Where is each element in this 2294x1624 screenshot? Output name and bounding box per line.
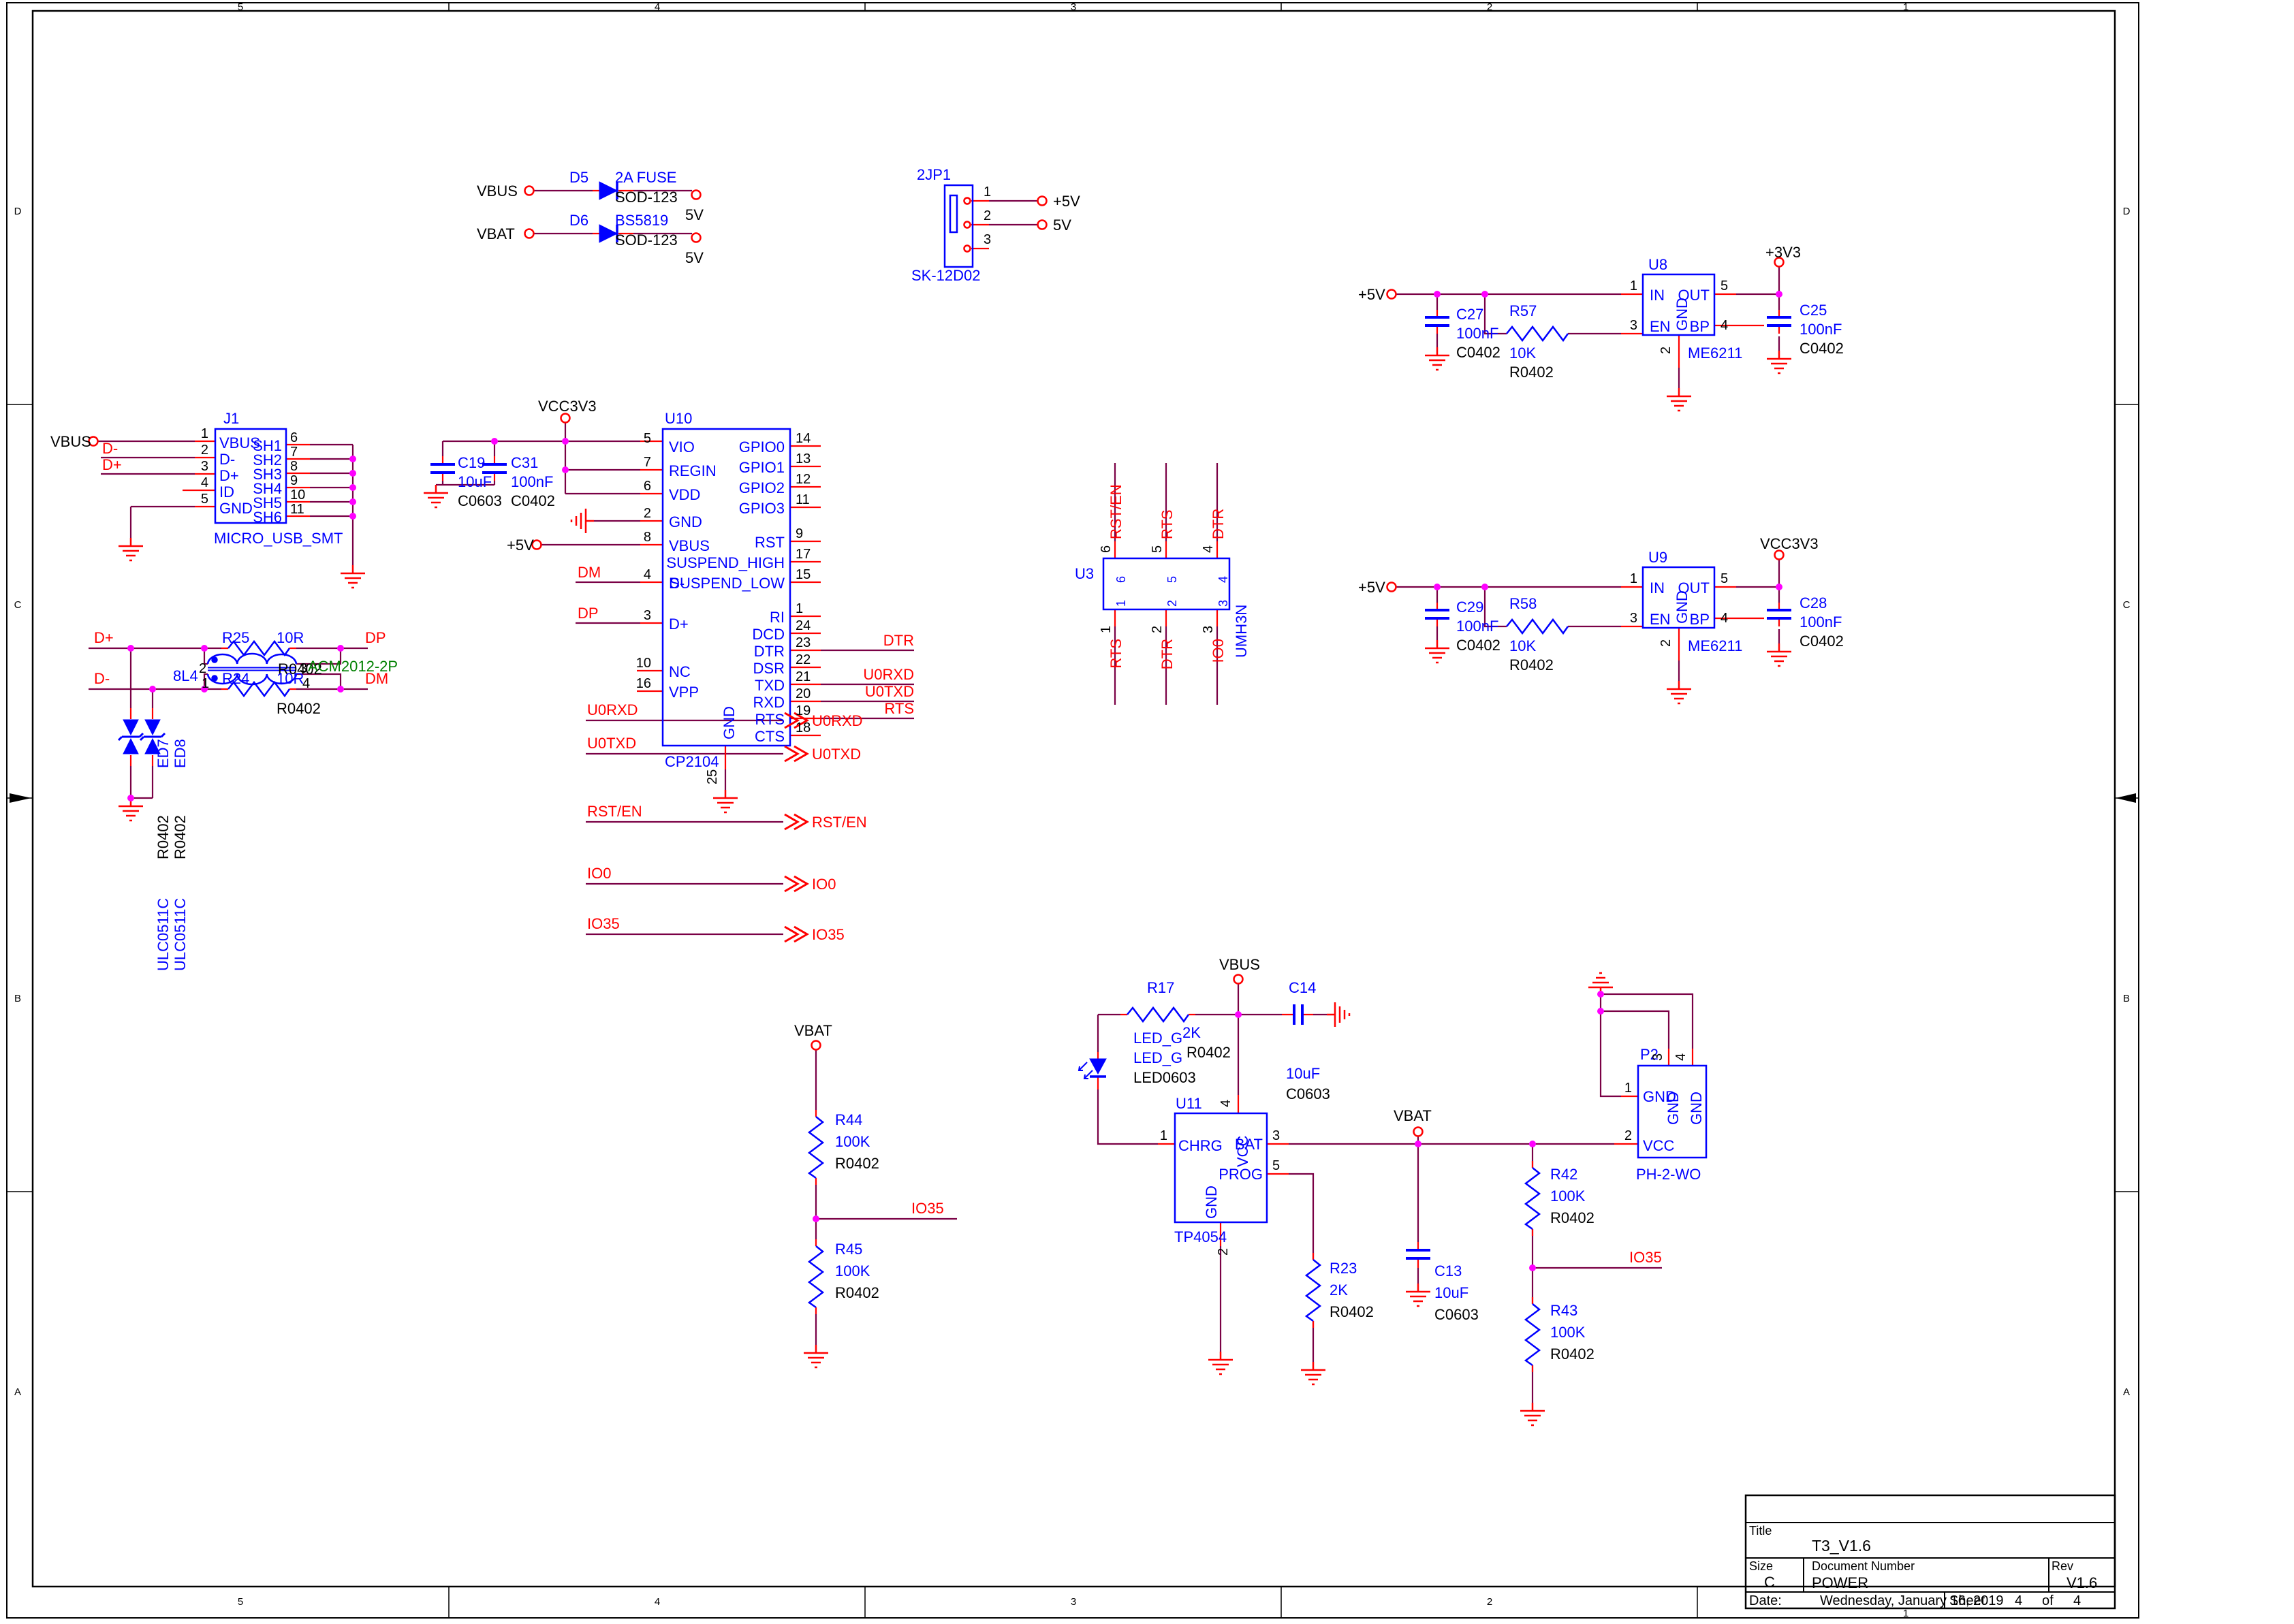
zone-bot-1: 1 <box>1903 1608 1908 1619</box>
net-io0-l: IO0 <box>587 865 611 882</box>
zone-right-c: C <box>2123 599 2131 611</box>
u8-pin4: 4 <box>1720 318 1728 333</box>
j1-pin3: 3 <box>201 459 208 474</box>
c19-package: C0603 <box>458 492 502 509</box>
u11-name-chrg: CHRG <box>1178 1137 1223 1154</box>
ed7-value: ULC0511C <box>155 898 172 971</box>
u9-pin2: 2 <box>1659 639 1674 647</box>
offpage-io35 <box>785 927 807 942</box>
zone-left-c: C <box>14 599 22 611</box>
doc-number-label: Document Number <box>1812 1559 1915 1573</box>
net-u0txd-r: U0TXD <box>812 746 861 763</box>
net-u0rxd-0: U0RXD <box>863 666 914 683</box>
u10-pin13: 13 <box>796 451 811 466</box>
j1-name-id: ID <box>219 483 234 500</box>
net-5v-1: 5V <box>685 206 704 223</box>
u3-pin2: 2 <box>1150 626 1165 633</box>
resistor-r45 <box>809 1246 823 1307</box>
zone-right-b: B <box>2123 993 2130 1004</box>
net-dp-2: DP <box>365 629 386 646</box>
r58-package: R0402 <box>1509 656 1554 673</box>
c25-package: C0402 <box>1800 340 1844 357</box>
net-dminus-1: D- <box>102 440 118 457</box>
ground-rotated-u10 <box>571 509 594 533</box>
capacitor-c29 <box>1425 610 1449 618</box>
schematic-canvas: VBUSD52A FUSESOD-1235VVBATD6BS5819SOD-12… <box>0 0 2294 1621</box>
fold-arrow-right <box>2116 793 2136 803</box>
c14-value: 10uF <box>1286 1065 1320 1082</box>
net-dplus-1: D+ <box>102 456 122 473</box>
u10-pin16: 16 <box>636 676 651 691</box>
led-ref: LED_G <box>1133 1049 1182 1066</box>
net-rts-1: RTS <box>884 700 914 717</box>
r23-ref: R23 <box>1330 1260 1357 1277</box>
net-vcc3v3-2: VCC3V3 <box>1760 535 1819 552</box>
u10-name-vdd: VDD <box>669 486 700 503</box>
u3-inner4: 4 <box>1216 576 1230 583</box>
r17-ref: R17 <box>1147 979 1174 996</box>
zone-bot-4: 4 <box>655 1596 660 1608</box>
net-plus5v-2: +5V <box>1358 286 1385 303</box>
date-label: Date: <box>1749 1593 1782 1608</box>
u11-pin4: 4 <box>1219 1100 1234 1107</box>
u10-name-dcd: DCD <box>752 626 785 643</box>
c27-value: 100nF <box>1456 325 1498 342</box>
r44-ref: R44 <box>835 1111 862 1128</box>
led-net-1: LED_G <box>1133 1030 1182 1047</box>
vbat-port-3: VBAT <box>794 1022 832 1039</box>
vbus-port-2: VBUS <box>1219 956 1260 973</box>
j1-port-vbus: VBUS <box>50 433 91 450</box>
r58-ref: R58 <box>1509 595 1537 612</box>
zone-bot-2: 2 <box>1487 1596 1492 1608</box>
u10-pin14: 14 <box>796 431 811 446</box>
u9-name-en: EN <box>1650 611 1671 628</box>
u11-pin2: 2 <box>1216 1248 1231 1256</box>
net-dtr-bot: DTR <box>1159 639 1176 669</box>
resistor-r43 <box>1526 1304 1539 1365</box>
u10-value: CP2104 <box>665 753 719 770</box>
j1-pin11: 11 <box>290 502 304 517</box>
capacitor-c31 <box>482 464 507 473</box>
u10-pin1: 1 <box>796 601 803 616</box>
u8-pin1: 1 <box>1630 278 1637 293</box>
u8-ref: U8 <box>1648 256 1667 273</box>
u10-pin5: 5 <box>644 431 651 446</box>
switch-2jp1 <box>945 185 973 267</box>
d6-value: BS5819 <box>615 212 668 229</box>
u10-name-rts: RTS <box>755 711 785 728</box>
j1-pin4: 4 <box>201 475 208 490</box>
r43-package: R0402 <box>1550 1346 1594 1363</box>
r57-package: R0402 <box>1509 364 1554 381</box>
fold-arrow-left <box>10 793 31 803</box>
u3-inner5: 5 <box>1165 576 1179 583</box>
net-5v-2: 5V <box>685 249 704 266</box>
net-vcc3v3-1: VCC3V3 <box>538 398 597 415</box>
u10-name-suspendlow: SUSPEND_LOW <box>670 575 785 592</box>
net-5v-3: 5V <box>1053 217 1071 234</box>
ground-symbols <box>119 347 1791 1425</box>
resistor-r42 <box>1526 1168 1539 1229</box>
u10-name-vbus: VBUS <box>669 537 710 554</box>
u10-name-dsr: DSR <box>753 660 785 677</box>
zone-top-1: 1 <box>1903 1 1908 13</box>
j1-pin9: 9 <box>290 473 298 488</box>
title-block: Title T3_V1.6 Size C Document Number POW… <box>1746 1495 2115 1608</box>
zone-bot-3: 3 <box>1071 1596 1076 1608</box>
u8-pin2: 2 <box>1659 347 1674 354</box>
sheet-title: T3_V1.6 <box>1812 1537 1871 1555</box>
j1-pin5: 5 <box>201 492 208 507</box>
c14-package: C0603 <box>1286 1085 1330 1102</box>
u8-name-gnd: GND <box>1674 298 1691 331</box>
u10-pin25: 25 <box>705 769 720 784</box>
u10-pin3: 3 <box>644 608 651 623</box>
net-dminus-2: D- <box>94 670 110 687</box>
u10-name-suspendhigh: SUSPEND_HIGH <box>666 554 785 571</box>
size-value: C <box>1764 1574 1775 1591</box>
u10-name-vio: VIO <box>669 439 695 456</box>
net-dtr-1: DTR <box>883 632 914 649</box>
j1-pin10: 10 <box>290 488 305 503</box>
d5-package: SOD-123 <box>615 189 678 206</box>
u3-inner2: 2 <box>1165 600 1179 607</box>
u10-pin18: 18 <box>796 720 811 735</box>
capacitor-c13 <box>1406 1250 1430 1258</box>
zone-left-a: A <box>14 1386 21 1398</box>
p2-name-gnd3: GND <box>1665 1092 1682 1125</box>
p2-pin4: 4 <box>1674 1053 1688 1061</box>
doc-number-value: POWER <box>1812 1574 1868 1591</box>
u11-name-bat: BAT <box>1235 1136 1263 1153</box>
u10-pin10: 10 <box>636 656 651 671</box>
net-3v3: +3V3 <box>1765 244 1801 261</box>
choke-ref: 8L4 <box>173 667 198 684</box>
u11-ref: U11 <box>1176 1095 1202 1112</box>
u9-pin1: 1 <box>1630 571 1637 586</box>
c28-package: C0402 <box>1800 633 1844 650</box>
rev-label: Rev <box>2052 1559 2073 1573</box>
u10-name-gnd25: GND <box>721 706 738 739</box>
j1-value: MICRO_USB_SMT <box>214 530 343 547</box>
u3-inner3: 3 <box>1216 600 1230 607</box>
u10-pin8: 8 <box>644 530 651 545</box>
u10-pin9: 9 <box>796 526 803 541</box>
u10-name-gpio2: GPIO2 <box>739 479 785 496</box>
u9-name-in: IN <box>1650 579 1665 596</box>
r45-value: 100K <box>835 1262 870 1279</box>
ed7-package: R0402 <box>155 815 172 859</box>
c13-package: C0603 <box>1434 1306 1479 1323</box>
r44-package: R0402 <box>835 1155 879 1172</box>
u8-pin3: 3 <box>1630 318 1637 333</box>
u3-inner6: 6 <box>1114 576 1128 583</box>
u10-pin15: 15 <box>796 567 811 582</box>
j1-pin8: 8 <box>290 459 298 474</box>
zone-top-2: 2 <box>1487 1 1492 13</box>
u10-ref: U10 <box>665 410 692 427</box>
j1-name-dminus: D- <box>219 451 235 468</box>
net-io35-l: IO35 <box>587 915 620 932</box>
ed7-ref: ED7 <box>155 739 172 768</box>
c31-value: 100nF <box>511 473 553 490</box>
jp1-pin3: 3 <box>984 232 991 247</box>
u8-name-en: EN <box>1650 318 1671 335</box>
net-dm-1: DM <box>578 564 601 581</box>
u10-name-gnd2: GND <box>669 513 702 530</box>
capacitor-c27 <box>1425 317 1449 325</box>
sheet-of-label: of <box>2042 1593 2054 1608</box>
net-rts-top: RTS <box>1159 509 1176 539</box>
sheet-total: 4 <box>2073 1593 2081 1608</box>
r43-ref: R43 <box>1550 1302 1577 1319</box>
r58-value: 10K <box>1509 637 1536 654</box>
u10-pin7: 7 <box>644 455 651 470</box>
zone-left-b: B <box>14 993 21 1004</box>
u10-pin11: 11 <box>796 492 810 507</box>
c27-ref: C27 <box>1456 306 1483 323</box>
j1-name-sh6: SH6 <box>253 509 282 526</box>
sheet-number: 4 <box>2015 1593 2022 1608</box>
jp1-pin2: 2 <box>984 208 991 223</box>
c29-package: C0402 <box>1456 637 1500 654</box>
zone-top-4: 4 <box>655 1 660 13</box>
c28-value: 100nF <box>1800 614 1842 631</box>
sheet-border <box>7 3 2139 1618</box>
j1-name-gnd: GND <box>219 500 253 517</box>
j1-name-dplus: D+ <box>219 467 239 484</box>
net-u0rxd-l: U0RXD <box>587 701 638 718</box>
p2-name-vcc: VCC <box>1643 1137 1675 1154</box>
j1-pin6: 6 <box>290 430 298 445</box>
zone-bot-5: 5 <box>238 1596 243 1608</box>
net-io0-r: IO0 <box>812 876 836 893</box>
net-dplus-2: D+ <box>94 629 114 646</box>
j1-ref: J1 <box>223 410 239 427</box>
u9-value: ME6211 <box>1688 637 1742 654</box>
u10-pin22: 22 <box>796 652 811 667</box>
u3-pin1: 1 <box>1099 626 1114 633</box>
j1-pin7: 7 <box>290 445 298 460</box>
resistor-r17 <box>1127 1008 1189 1021</box>
u3-pin3: 3 <box>1201 626 1216 633</box>
zone-ticks <box>7 3 2139 1618</box>
rev-value: V1.6 <box>2067 1574 2097 1591</box>
u10-name-dplus: D+ <box>669 616 689 633</box>
title-label: Title <box>1749 1524 1772 1538</box>
net-dtr-top: DTR <box>1210 509 1227 539</box>
u10-pin12: 12 <box>796 472 811 487</box>
r57-value: 10K <box>1509 345 1536 362</box>
u10-name-txd: TXD <box>755 677 785 694</box>
net-plus5v-3: +5V <box>1358 579 1385 596</box>
u10-name-rst: RST <box>755 534 785 551</box>
ground-rotated-c14 <box>1327 1002 1349 1027</box>
zone-left-d: D <box>14 206 22 217</box>
ed8-value: ULC0511C <box>172 898 189 971</box>
capacitor-c28 <box>1767 610 1791 618</box>
jp1-value: SK-12D02 <box>911 267 981 284</box>
u11-name-prog: PROG <box>1219 1166 1263 1183</box>
vbat-port-2: VBAT <box>1394 1107 1432 1124</box>
c14-ref: C14 <box>1289 979 1316 996</box>
c19-value: 10uF <box>458 473 492 490</box>
r44-value: 100K <box>835 1133 870 1150</box>
p2-value: PH-2-WO <box>1636 1166 1701 1183</box>
u8-name-in: IN <box>1650 287 1665 304</box>
resistor-r57 <box>1507 327 1568 340</box>
u10-name-ri: RI <box>770 609 785 626</box>
r42-ref: R42 <box>1550 1166 1577 1183</box>
u8-pin5: 5 <box>1720 278 1728 293</box>
u10-name-nc: NC <box>669 663 691 680</box>
p2-pin2: 2 <box>1624 1128 1632 1143</box>
r23-package: R0402 <box>1330 1303 1374 1320</box>
led-g <box>1079 1059 1106 1079</box>
c31-package: C0402 <box>511 492 555 509</box>
u10-name-dtr: DTR <box>754 643 785 660</box>
d6-package: SOD-123 <box>615 232 678 249</box>
r42-value: 100K <box>1550 1188 1586 1205</box>
u10-name-cts: CTS <box>755 728 785 745</box>
net-u0txd-l: U0TXD <box>587 735 636 752</box>
u3-pin5: 5 <box>1150 545 1165 553</box>
u9-pin3: 3 <box>1630 611 1637 626</box>
u3-ref: U3 <box>1075 565 1094 582</box>
c13-ref: C13 <box>1434 1262 1462 1279</box>
d5-ref: D5 <box>569 169 588 186</box>
capacitor-c14 <box>1294 1004 1302 1025</box>
net-io35-1: IO35 <box>911 1200 944 1217</box>
u3-pin4: 4 <box>1201 545 1216 553</box>
sheet-label: Sheet <box>1949 1593 1985 1608</box>
schematic-labels: VBUSD52A FUSESOD-1235VVBATD6BS5819SOD-12… <box>14 1 2131 1619</box>
zone-right-d: D <box>2123 206 2131 217</box>
u9-name-gnd: GND <box>1674 590 1691 624</box>
j1-pin1: 1 <box>201 426 208 441</box>
u9-pin5: 5 <box>1720 571 1728 586</box>
d6-ref: D6 <box>569 212 588 229</box>
u10-pin20: 20 <box>796 686 811 701</box>
u10-name-rxd: RXD <box>753 694 785 711</box>
led-package: LED0603 <box>1133 1069 1196 1086</box>
resistor-r58 <box>1507 620 1568 633</box>
net-rsten-top: RST/EN <box>1107 484 1125 539</box>
components <box>119 182 1791 1365</box>
c29-ref: C29 <box>1456 599 1483 616</box>
r45-ref: R45 <box>835 1241 862 1258</box>
u10-name-gpio0: GPIO0 <box>739 439 785 456</box>
u10-name-vpp: VPP <box>669 684 699 701</box>
net-rts-bot: RTS <box>1107 639 1125 669</box>
r23-value: 2K <box>1330 1281 1348 1299</box>
u10-pin6: 6 <box>644 479 651 494</box>
r24-package: R0402 <box>277 700 321 717</box>
offpage-u0txd <box>785 746 807 761</box>
net-io35-r: IO35 <box>812 926 845 943</box>
r25-ref: R25 <box>222 629 249 646</box>
zone-top-5: 5 <box>238 1 243 13</box>
u8-name-bp: BP <box>1690 318 1710 335</box>
c31-ref: C31 <box>511 454 538 471</box>
u3-inner1: 1 <box>1114 600 1128 607</box>
net-plus5v-4: +5V <box>507 537 534 554</box>
capacitor-c19 <box>430 464 455 473</box>
u9-name-bp: BP <box>1690 611 1710 628</box>
u11-value: TP4054 <box>1174 1228 1227 1245</box>
u10-name-gpio3: GPIO3 <box>739 500 785 517</box>
zone-right-a: A <box>2123 1386 2130 1398</box>
u10-pin17: 17 <box>796 547 811 562</box>
u9-pin4: 4 <box>1720 611 1728 626</box>
offpage-io0 <box>785 876 807 891</box>
net-dp-1: DP <box>578 605 599 622</box>
c13-value: 10uF <box>1434 1284 1468 1301</box>
r43-value: 100K <box>1550 1324 1586 1341</box>
tvs-ed7 <box>119 720 143 754</box>
u9-ref: U9 <box>1648 549 1667 566</box>
u10-pin21: 21 <box>796 669 811 684</box>
vbus-port-label: VBUS <box>477 182 518 200</box>
r17-value: 2K <box>1182 1024 1201 1041</box>
net-rsten-r: RST/EN <box>812 814 867 831</box>
ed8-ref: ED8 <box>172 739 189 768</box>
net-dm-2: DM <box>365 670 388 687</box>
choke-pin2: 2 <box>199 661 206 676</box>
choke-pin1: 1 <box>202 676 209 691</box>
u10-name-gpio1: GPIO1 <box>739 459 785 476</box>
net-io35-2: IO35 <box>1629 1249 1662 1266</box>
c29-value: 100nF <box>1456 618 1498 635</box>
j1-pin2: 2 <box>201 443 208 458</box>
zone-top-3: 3 <box>1071 1 1076 13</box>
u10-pin19: 19 <box>796 703 811 718</box>
r42-package: R0402 <box>1550 1209 1594 1226</box>
net-io0-bot: IO0 <box>1210 639 1227 663</box>
u11-name-gnd: GND <box>1203 1185 1220 1219</box>
u10-pin23: 23 <box>796 635 811 650</box>
u3-pin6: 6 <box>1099 545 1114 553</box>
u10-name-regin: REGIN <box>669 462 717 479</box>
net-rsten-l: RST/EN <box>587 803 642 820</box>
u3-value: UMH3N <box>1233 605 1250 658</box>
d5-value: 2A FUSE <box>615 169 676 186</box>
u11-pin3: 3 <box>1272 1128 1280 1143</box>
vbat-port-label: VBAT <box>477 225 515 242</box>
u11-pin1: 1 <box>1160 1128 1167 1143</box>
jp1-pin1: 1 <box>984 185 991 200</box>
size-label: Size <box>1749 1559 1773 1573</box>
r57-ref: R57 <box>1509 302 1537 319</box>
net-u0txd-0: U0TXD <box>865 683 914 700</box>
c27-package: C0402 <box>1456 344 1500 361</box>
c25-value: 100nF <box>1800 321 1842 338</box>
u11-pin5: 5 <box>1272 1158 1280 1173</box>
p2-pin1: 1 <box>1624 1081 1632 1096</box>
resistor-r23 <box>1306 1260 1320 1321</box>
jp1-ref: 2JP1 <box>917 166 951 183</box>
capacitor-c25 <box>1767 317 1791 325</box>
r24-value: 10R <box>277 670 304 687</box>
c19-ref: C19 <box>458 454 485 471</box>
u8-value: ME6211 <box>1688 345 1742 362</box>
u10-pin2: 2 <box>644 506 651 521</box>
junction-dots <box>127 291 1782 1271</box>
r45-package: R0402 <box>835 1284 879 1301</box>
u10-pin4: 4 <box>644 567 651 582</box>
r17-package: R0402 <box>1187 1044 1231 1061</box>
